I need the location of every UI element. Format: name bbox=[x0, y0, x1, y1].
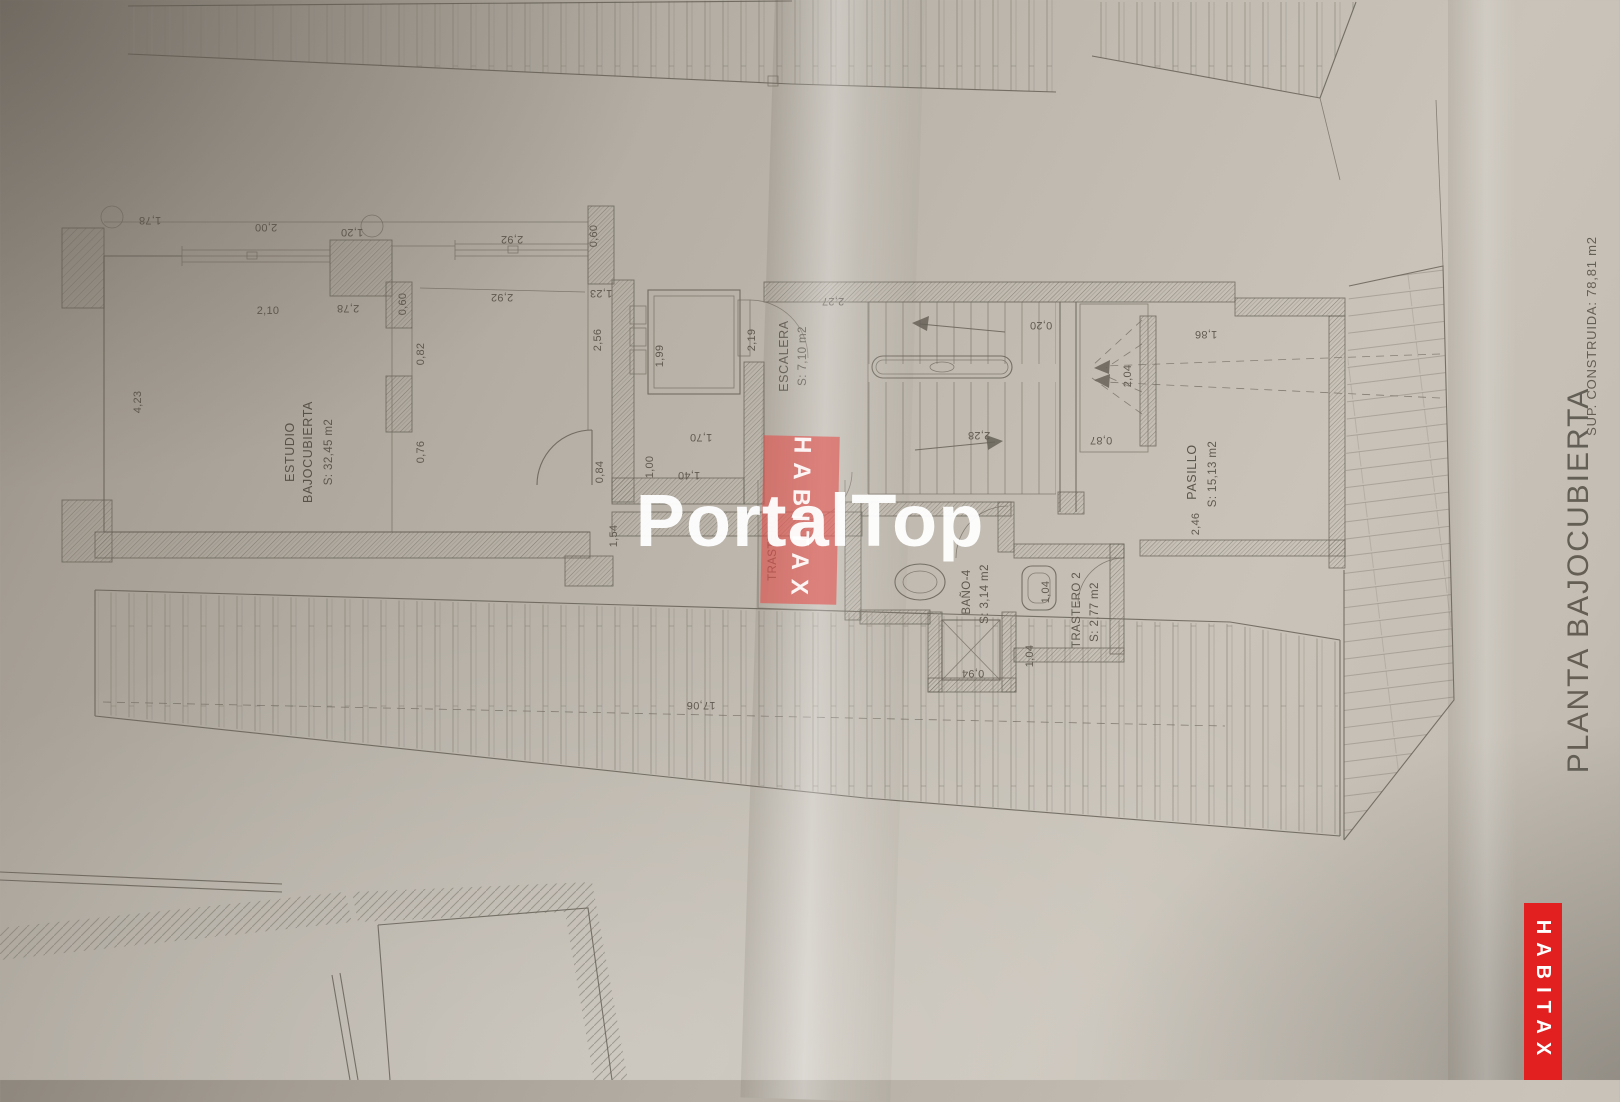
dim-label: 1,04 bbox=[1024, 645, 1036, 668]
dim-label: 2,92 bbox=[501, 233, 524, 245]
dim-label: 1,86 bbox=[1195, 328, 1218, 340]
title-block: PLANTA BAJOCUBIERTA SUP. CONSTRUIDA: 78,… bbox=[1562, 236, 1599, 773]
dim-label: 0,60 bbox=[588, 225, 600, 248]
dim-label: 0,87 bbox=[1090, 434, 1113, 446]
roof-band-top bbox=[128, 0, 1056, 92]
dim-label: 0,82 bbox=[415, 343, 427, 366]
dim-label: 2,10 bbox=[257, 305, 280, 317]
dim-label: 2,00 bbox=[255, 221, 278, 233]
habitax-logo: HABITAX bbox=[1524, 903, 1562, 1080]
dim-label: 0,94 bbox=[962, 667, 985, 679]
room-label-pasillo: PASILLO bbox=[1185, 444, 1199, 499]
room-label-bano: BAÑO-4 bbox=[960, 569, 973, 614]
roof-bottom bbox=[95, 590, 1340, 836]
habitax-logo-text: HABITAX bbox=[1532, 920, 1555, 1063]
room-area-pasillo: S: 15,13 m2 bbox=[1207, 441, 1219, 507]
dim-label: 1,78 bbox=[139, 214, 162, 226]
dim-label: 0,84 bbox=[594, 461, 606, 484]
plan-title: PLANTA BAJOCUBIERTA bbox=[1562, 387, 1595, 773]
dim-label: 1,00 bbox=[644, 456, 656, 479]
dim-label: 1,20 bbox=[341, 226, 364, 238]
built-area-label: SUP. CONSTRUIDA: 78,81 m2 bbox=[1584, 236, 1599, 436]
roof-band-top-right-corner bbox=[1092, 2, 1443, 266]
room-area-trastero2: S: 2,77 m2 bbox=[1089, 582, 1101, 642]
dim-label: 1,23 bbox=[590, 287, 613, 299]
dim-label: 2,46 bbox=[1190, 513, 1202, 536]
dim-label: 2,19 bbox=[746, 329, 758, 352]
dim-label: 2,56 bbox=[592, 329, 604, 352]
dim-label: 0,76 bbox=[415, 441, 427, 464]
room-area-estudio: S: 32,45 m2 bbox=[323, 419, 335, 485]
dim-label: 0,20 bbox=[1030, 319, 1053, 331]
dim-label: 1,99 bbox=[654, 345, 666, 368]
dim-label: 0,60 bbox=[397, 293, 409, 316]
dim-label: 2,04 bbox=[1122, 365, 1134, 388]
room-label-estudio: BAJOCUBIERTA bbox=[301, 401, 315, 503]
dim-label: 4,23 bbox=[132, 391, 144, 414]
room-label-trastero2: TRASTERO 2 bbox=[1071, 572, 1083, 648]
dim-label: 2,92 bbox=[491, 291, 514, 303]
dim-label: 2,27 bbox=[822, 295, 845, 307]
dim-label: 17,06 bbox=[686, 699, 715, 711]
dim-label: 2,78 bbox=[337, 302, 360, 314]
dim-label: 1,04 bbox=[1040, 581, 1052, 604]
lower-floor-fragment bbox=[0, 872, 628, 1080]
dim-label: 2,28 bbox=[968, 429, 991, 441]
roof-right bbox=[1344, 266, 1454, 840]
dim-label: 1,70 bbox=[690, 431, 713, 443]
room-area-escalera: S: 7,10 m2 bbox=[797, 326, 809, 386]
room-label-escalera: ESCALERA bbox=[777, 320, 791, 392]
room-area-bano: S: 3,14 m2 bbox=[979, 564, 991, 624]
portaltop-watermark: PortalTop bbox=[610, 478, 1010, 563]
room-label-estudio: ESTUDIO bbox=[283, 422, 297, 482]
